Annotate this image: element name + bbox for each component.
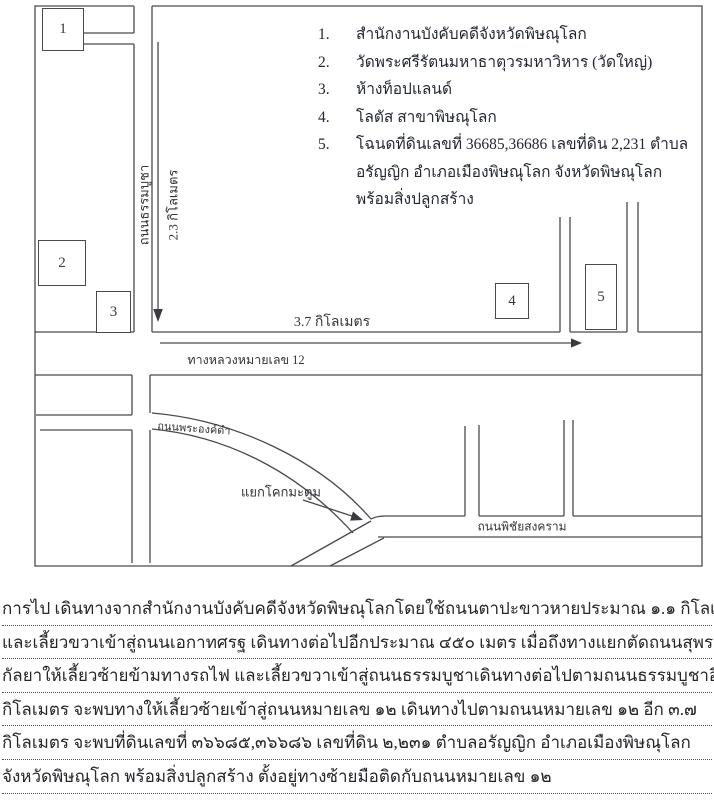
legend-item-text: วัดพระศรีรัตนมหาธาตุวรมหาวิหาร (วัดใหญ่) [356,49,700,77]
highway-12-label: ทางหลวงหมายเลข 12 [187,350,304,370]
legend-item-text: สำนักงานบังคับคดีจังหวัดพิษณุโลก [356,21,700,49]
phichai-side-street-2 [564,420,573,516]
legend-item-4: 4. โลตัส สาขาพิษณุโลก [318,104,700,132]
route-map: 1 2 3 4 5 ถนนธรรมบูชา 2.3 กิโลเมตร 3.7 ก… [0,0,714,600]
arrow-3-7-km-head [571,338,582,347]
side-street-a-lines [560,217,570,332]
scanned-map-page: 1 2 3 4 5 ถนนธรรมบูชา 2.3 กิโลเมตร 3.7 ก… [0,0,714,800]
map-marker-1: 1 [42,8,84,51]
directions-line: จังหวัดพิษณุโลก พร้อมสิ่งปลูกสร้าง ตั้งอ… [2,760,712,794]
map-marker-2: 2 [38,240,86,286]
map-marker-3: 3 [96,291,131,333]
directions-line: กิโลเมตร จะพบทางให้เลี้ยวซ้ายเข้าสู่ถนนห… [2,693,712,727]
legend-list: 1. สำนักงานบังคับคดีจังหวัดพิษณุโลก 2. ว… [318,21,700,214]
lower-vertical-road-lines [132,375,150,563]
map-marker-4: 4 [495,283,529,319]
legend-item-5: 5. โฉนดที่ดินเลขที่ 36685,36686 เลขที่ดิ… [318,131,700,214]
directions-line: การไป เดินทางจากสำนักงานบังคับคดีจังหวัด… [2,592,712,626]
khok-matum-arrow-line [303,500,355,517]
distance-3-7-km-label: 3.7 กิโลเมตร [294,311,370,333]
phichai-side-street-1 [465,425,479,516]
legend-item-number: 4. [318,104,342,132]
legend-item-3: 3. ห้างท็อปแลนด์ [318,76,700,104]
arrow-2-3-km-head [153,309,163,322]
legend-item-number: 2. [318,49,342,77]
directions-paragraph: การไป เดินทางจากสำนักงานบังคับคดีจังหวัด… [2,592,712,794]
curve-junction-connector [371,516,385,519]
legend-item-1: 1. สำนักงานบังคับคดีจังหวัดพิษณุโลก [318,21,700,49]
legend-item-text: ห้างท็อปแลนด์ [356,76,700,104]
directions-line: กิโลเมตร จะพบที่ดินเลขที่ ๓๖๖๘๕,๓๖๖๘๖ เล… [2,726,712,760]
directions-line: และเลี้ยวขวาเข้าสู่ถนนเอกาทศรฐ เดินทางต่… [2,626,712,660]
khok-matum-junction-label: แยกโคกมะตูม [241,482,321,503]
phichai-songkhram-road-label: ถนนพิชัยสงคราม [477,518,566,537]
lower-left-road-lines [36,415,132,430]
legend-item-text: โลตัส สาขาพิษณุโลก [356,104,700,132]
side-street-b-lines [627,202,638,332]
legend-item-text: โฉนดที่ดินเลขที่ 36685,36686 เลขที่ดิน 2… [356,131,700,214]
directions-line: กัลยาให้เลี้ยวซ้ายข้ามทางรถไฟ และเลี้ยวข… [2,659,712,693]
map-marker-5: 5 [585,264,617,330]
legend-item-number: 1. [318,21,342,49]
khok-matum-arrow-head [350,512,363,521]
access-road-lines [84,33,134,44]
diagonal-road-lines [291,521,384,566]
legend-item-number: 5. [318,131,342,159]
thammabucha-road-label: ถนนธรรมบูชา [134,165,155,246]
legend-item-2: 2. วัดพระศรีรัตนมหาธาตุวรมหาวิหาร (วัดให… [318,49,700,77]
legend-item-number: 3. [318,76,342,104]
distance-2-3-km-label: 2.3 กิโลเมตร [163,170,184,241]
